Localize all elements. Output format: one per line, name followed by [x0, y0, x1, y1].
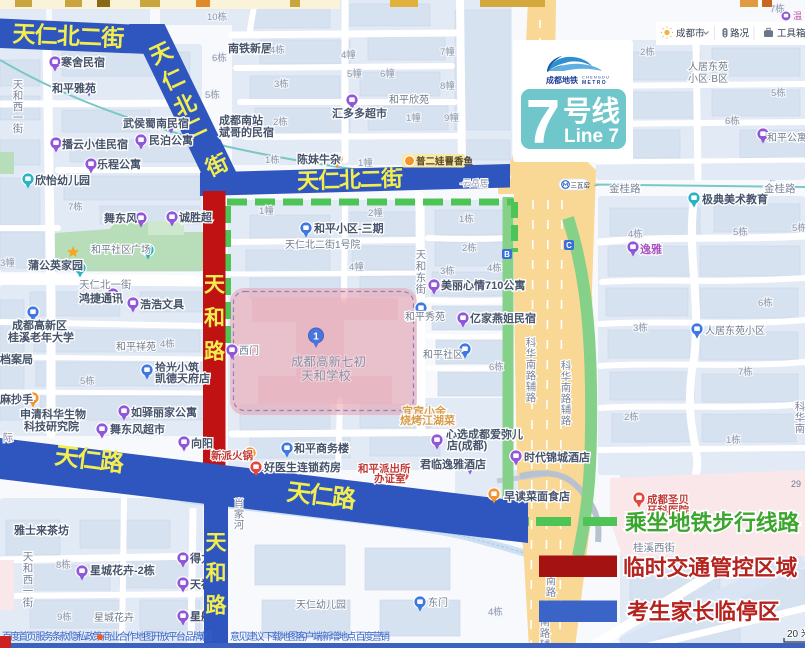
svg-text:鸿捷通讯: 鸿捷通讯 — [79, 291, 123, 305]
svg-text:北: 北 — [339, 167, 362, 193]
svg-text:人居东苑: 人居东苑 — [688, 60, 728, 73]
svg-text:和平社区: 和平社区 — [423, 348, 463, 361]
svg-text:办证室: 办证室 — [374, 472, 406, 485]
svg-text:和平公寓: 和平公寓 — [767, 131, 805, 144]
svg-text:号线: 号线 — [563, 96, 620, 128]
svg-text:和平祥苑: 和平祥苑 — [116, 340, 156, 353]
svg-text:M E T R O: M E T R O — [582, 80, 606, 86]
svg-text:3栋: 3栋 — [440, 265, 455, 277]
svg-text:2栋: 2栋 — [273, 116, 288, 128]
svg-text:Line 7: Line 7 — [564, 126, 619, 147]
svg-text:天: 天 — [204, 274, 226, 297]
svg-text:和: 和 — [206, 562, 227, 585]
svg-text:天: 天 — [206, 532, 228, 555]
svg-text:3栋: 3栋 — [274, 78, 289, 90]
svg-text:小区·B区: 小区·B区 — [688, 73, 728, 85]
svg-text:4栋: 4栋 — [270, 44, 285, 56]
svg-text:乘坐地铁步行线路: 乘坐地铁步行线路 — [624, 510, 800, 535]
svg-text:好医生连锁药房: 好医生连锁药房 — [263, 460, 341, 474]
svg-text:百度首页 服务条款 隐私政策 商业合作 地图开放平台 品牌/: 百度首页 服务条款 隐私政策 商业合作 地图开放平台 品牌/图 — [2, 630, 212, 643]
svg-text:和: 和 — [416, 261, 427, 273]
svg-text:南铁新居: 南铁新居 — [228, 41, 272, 55]
svg-text:天: 天 — [12, 21, 37, 48]
svg-text:街: 街 — [380, 166, 404, 192]
svg-text:新派火锅: 新派火锅 — [211, 449, 253, 462]
svg-text:仁: 仁 — [318, 168, 341, 194]
svg-text:7幢: 7幢 — [440, 46, 455, 58]
svg-text:路: 路 — [330, 483, 358, 514]
svg-text:科技研究院: 科技研究院 — [24, 419, 79, 433]
svg-text:4栋: 4栋 — [160, 338, 175, 350]
svg-text:天: 天 — [23, 551, 34, 563]
svg-text:乐程公寓: 乐程公寓 — [97, 157, 141, 171]
svg-text:天仁北二街1号院: 天仁北二街1号院 — [285, 238, 361, 251]
svg-text:6栋: 6栋 — [212, 52, 227, 64]
svg-text:临时交通管控区域: 临时交通管控区域 — [623, 555, 798, 580]
svg-text:路况: 路况 — [730, 28, 750, 40]
svg-text:路: 路 — [540, 627, 551, 640]
svg-text:←: ← — [768, 174, 777, 184]
svg-text:8幢: 8幢 — [440, 80, 455, 92]
svg-text:2栋: 2栋 — [640, 46, 655, 58]
svg-text:1栋: 1栋 — [265, 154, 280, 166]
svg-text:欣怡幼儿园: 欣怡幼儿园 — [35, 173, 90, 187]
svg-text:6栋: 6栋 — [758, 297, 773, 309]
svg-text:时代锦城酒店: 时代锦城酒店 — [524, 450, 590, 464]
svg-text:汇多多超市: 汇多多超市 — [332, 106, 387, 120]
svg-text:斌哥的民宿: 斌哥的民宿 — [218, 125, 274, 139]
svg-text:美丽心情710公寓: 美丽心情710公寓 — [441, 278, 525, 292]
svg-text:6幢: 6幢 — [380, 68, 395, 80]
svg-text:人居东苑小区: 人居东苑小区 — [705, 324, 765, 337]
svg-text:天仁北一街: 天仁北一街 — [79, 278, 132, 291]
svg-text:店(成都): 店(成都) — [447, 438, 488, 452]
svg-text:和: 和 — [23, 563, 34, 575]
svg-text:如驿丽家公寓: 如驿丽家公寓 — [131, 405, 197, 419]
svg-text:街: 街 — [416, 283, 427, 296]
svg-text:1栋: 1栋 — [726, 434, 741, 446]
svg-text:拾光小筑: 拾光小筑 — [155, 360, 199, 374]
svg-text:凯德天府店: 凯德天府店 — [155, 371, 210, 385]
svg-text:和: 和 — [204, 307, 225, 330]
svg-text:东门: 东门 — [428, 596, 448, 609]
svg-text:考生家长临停区: 考生家长临停区 — [627, 599, 780, 624]
svg-text:5栋: 5栋 — [792, 222, 805, 234]
svg-text:天和学校: 天和学校 — [301, 368, 352, 383]
svg-text:向阳: 向阳 — [191, 436, 213, 450]
svg-text:4幢: 4幢 — [349, 261, 364, 273]
svg-text:4栋: 4栋 — [628, 228, 643, 240]
svg-text:街: 街 — [100, 25, 125, 52]
svg-text:南: 南 — [795, 422, 805, 435]
svg-text:舞东风: 舞东风 — [104, 211, 137, 225]
svg-text:3栋: 3栋 — [633, 322, 648, 334]
svg-text:29: 29 — [791, 479, 801, 489]
svg-text:烧烤江湖菜: 烧烤江湖菜 — [400, 413, 456, 427]
svg-text:←: ← — [592, 179, 601, 189]
svg-text:C H E N G D U: C H E N G D U — [582, 75, 609, 80]
svg-text:7栋: 7栋 — [68, 201, 83, 213]
svg-text:和平小区-三期: 和平小区-三期 — [314, 221, 384, 235]
svg-text:和平秀苑: 和平秀苑 — [405, 310, 445, 323]
svg-text:星城花卉: 星城花卉 — [94, 611, 134, 624]
svg-text:君临逸雅酒店: 君临逸雅酒店 — [420, 457, 486, 471]
svg-text:成都地铁: 成都地铁 — [546, 75, 578, 85]
svg-text:B: B — [504, 250, 510, 259]
svg-text:路: 路 — [561, 414, 572, 427]
svg-text:成都高新区: 成都高新区 — [12, 318, 67, 332]
svg-text:麻抄手: 麻抄手 — [0, 392, 33, 406]
svg-text:1栋: 1栋 — [459, 213, 474, 225]
svg-text:街: 街 — [13, 122, 24, 135]
svg-text:和平欣苑: 和平欣苑 — [389, 93, 429, 106]
svg-text:-云岳居: -云岳居 — [460, 178, 488, 188]
svg-text:街: 街 — [23, 596, 34, 609]
svg-text:5幢: 5幢 — [347, 68, 362, 80]
svg-text:路: 路 — [206, 594, 228, 618]
svg-text:蒲公英家园: 蒲公英家园 — [28, 258, 83, 272]
svg-text:浩浩文具: 浩浩文具 — [140, 297, 184, 311]
svg-text:1幢: 1幢 — [406, 112, 421, 124]
svg-text:5栋: 5栋 — [205, 89, 220, 101]
svg-text:工具箱: 工具箱 — [777, 28, 805, 40]
svg-text:二: 二 — [79, 24, 103, 51]
svg-text:武侯蜀南民宿: 武侯蜀南民宿 — [123, 116, 189, 130]
svg-text:天: 天 — [297, 168, 321, 194]
svg-text:路: 路 — [204, 340, 226, 364]
svg-text:5栋: 5栋 — [733, 226, 748, 238]
svg-text:7: 7 — [526, 88, 560, 157]
svg-text:C: C — [566, 241, 572, 250]
svg-text:1幢: 1幢 — [259, 205, 274, 217]
svg-text:6栋: 6栋 — [489, 361, 504, 373]
svg-text:天: 天 — [416, 249, 427, 261]
svg-text:9幢: 9幢 — [444, 112, 459, 124]
svg-text:逸雅: 逸雅 — [640, 242, 662, 256]
svg-text:1幢: 1幢 — [358, 157, 373, 169]
svg-text:意见建议 下载地图客户端 新增地点 百度营销: 意见建议 下载地图客户端 新增地点 百度营销 — [230, 630, 390, 643]
svg-text:10栋: 10栋 — [207, 11, 228, 23]
svg-text:亿家燕姐民宿: 亿家燕姐民宿 — [470, 311, 536, 325]
svg-text:东: 东 — [416, 271, 427, 284]
svg-text:4栋: 4栋 — [488, 606, 503, 618]
svg-text:路: 路 — [546, 586, 557, 599]
svg-text:播云小佳民宿: 播云小佳民宿 — [62, 137, 128, 151]
svg-text:舞东风超市: 舞东风超市 — [110, 422, 165, 436]
svg-text:5栋: 5栋 — [80, 375, 95, 387]
svg-text:成都南站: 成都南站 — [219, 113, 263, 127]
svg-text:西: 西 — [23, 574, 34, 586]
svg-text:桂溪西街: 桂溪西街 — [633, 541, 675, 554]
svg-text:2栋: 2栋 — [462, 242, 477, 254]
svg-text:4栋: 4栋 — [487, 262, 502, 274]
svg-text:路: 路 — [98, 447, 126, 478]
svg-text:1: 1 — [313, 331, 319, 343]
svg-text:陈妹牛杂: 陈妹牛杂 — [297, 152, 341, 166]
svg-text:成都市: 成都市 — [676, 28, 705, 40]
svg-text:寒舍民宿: 寒舍民宿 — [60, 55, 105, 69]
svg-text:申清科华生物: 申清科华生物 — [20, 407, 86, 421]
svg-text:4幢: 4幢 — [341, 49, 356, 61]
svg-text:天仁幼儿园: 天仁幼儿园 — [296, 598, 346, 611]
svg-text:星城花卉-2栋: 星城花卉-2栋 — [90, 563, 155, 577]
svg-text:极典美术教育: 极典美术教育 — [702, 192, 768, 206]
svg-text:7栋: 7栋 — [738, 366, 753, 378]
svg-text:5栋: 5栋 — [771, 87, 786, 99]
svg-text:北: 北 — [56, 23, 80, 50]
svg-text:2幢: 2幢 — [368, 207, 383, 219]
svg-text:和平雅苑: 和平雅苑 — [52, 81, 96, 95]
svg-text:和平社区广场: 和平社区广场 — [91, 243, 151, 256]
svg-text:雅士来茶坊: 雅士来茶坊 — [14, 523, 69, 537]
svg-text:温: 温 — [793, 11, 802, 21]
svg-text:2栋: 2栋 — [624, 411, 639, 423]
svg-text:普二娃罾香鱼: 普二娃罾香鱼 — [416, 156, 474, 168]
svg-text:心选成都爱弥儿: 心选成都爱弥儿 — [446, 427, 523, 441]
svg-text:诚胜超: 诚胜超 — [179, 210, 213, 224]
svg-text:早读菜面食店: 早读菜面食店 — [504, 489, 570, 503]
svg-text:20 米: 20 米 — [787, 627, 805, 640]
svg-text:成都高新七初: 成都高新七初 — [291, 354, 366, 369]
svg-text:二: 二 — [360, 166, 383, 192]
svg-text:西门: 西门 — [239, 344, 259, 357]
svg-text:河: 河 — [234, 519, 245, 531]
svg-text:和平商务楼: 和平商务楼 — [294, 441, 349, 455]
svg-text:档案局: 档案局 — [0, 352, 33, 366]
svg-text:8栋: 8栋 — [56, 559, 71, 571]
svg-text:桂溪老年大学: 桂溪老年大学 — [7, 330, 74, 344]
svg-text:三瓦窑: 三瓦窑 — [571, 181, 591, 190]
svg-text:际: 际 — [3, 432, 14, 444]
svg-text:路: 路 — [526, 391, 537, 404]
svg-text:9栋: 9栋 — [57, 611, 72, 623]
svg-text:仁: 仁 — [34, 22, 58, 49]
svg-text:6栋: 6栋 — [725, 115, 740, 127]
svg-text:3幢: 3幢 — [0, 257, 15, 269]
svg-text:一: 一 — [23, 586, 34, 598]
svg-text:民泊公寓: 民泊公寓 — [149, 133, 193, 147]
svg-text:金桂路: 金桂路 — [609, 182, 641, 195]
